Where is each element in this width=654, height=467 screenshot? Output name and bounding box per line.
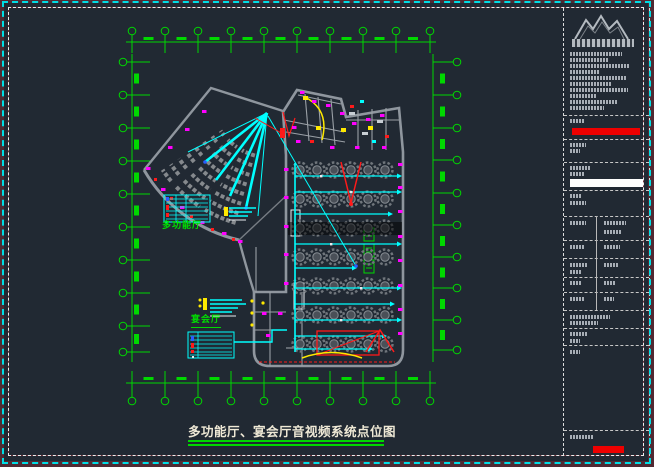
title-block (563, 8, 650, 456)
title-underline (188, 440, 384, 442)
titleblock-text-line (570, 149, 580, 153)
company-logo-mountains-icon (572, 12, 636, 42)
titleblock-text-line (570, 321, 598, 325)
titleblock-text-line (570, 58, 608, 62)
label-banquet-hall: 宴会厅 (191, 316, 221, 328)
titleblock-divider (564, 292, 649, 293)
titleblock-text-line (570, 52, 622, 56)
cad-sheet: 多功能厅 宴会厅 多功能厅、宴会厅音视频系统点位图 (0, 0, 654, 467)
label-multifunction-hall: 多功能厅 (162, 222, 202, 231)
titleblock-divider (564, 277, 649, 278)
titleblock-text-line (604, 263, 618, 267)
titleblock-divider (564, 328, 649, 329)
titleblock-text-line (570, 350, 580, 354)
titleblock-red-highlight-bar (572, 128, 640, 135)
titleblock-text-line (570, 263, 588, 267)
titleblock-text-line (570, 106, 604, 110)
auditorium-seating (163, 131, 374, 273)
titleblock-text-line (570, 245, 584, 249)
titleblock-divider (564, 430, 649, 431)
titleblock-column-divider (596, 216, 597, 310)
titleblock-text-line (570, 194, 582, 198)
titleblock-text-line (570, 435, 594, 439)
titleblock-text-line (604, 230, 622, 234)
titleblock-divider (564, 258, 649, 259)
titleblock-text-line (570, 315, 610, 319)
legend-tables (164, 195, 256, 358)
titleblock-divider (564, 115, 649, 116)
titleblock-text-line (570, 201, 586, 205)
titleblock-text-line (604, 245, 620, 249)
titleblock-text-line (570, 166, 590, 170)
titleblock-divider (564, 310, 649, 311)
titleblock-divider (564, 345, 649, 346)
titleblock-text-line (570, 172, 584, 176)
titleblock-text-line (570, 281, 582, 285)
banquet-tables (288, 163, 402, 352)
drawing-title: 多功能厅、宴会厅音视频系统点位图 (188, 425, 388, 439)
titleblock-divider (564, 240, 649, 241)
titleblock-text-line (570, 119, 584, 123)
titleblock-divider (564, 139, 649, 140)
titleblock-text-line (570, 64, 630, 68)
titleblock-text-line (570, 339, 580, 343)
titleblock-text-line (570, 82, 612, 86)
titleblock-text-line (570, 100, 618, 104)
company-name-band (572, 39, 634, 47)
titleblock-text-line (570, 76, 626, 80)
titleblock-text-line (570, 270, 582, 274)
titleblock-white-highlight-bar (570, 179, 643, 187)
titleblock-divider (564, 162, 649, 163)
titleblock-red-stamp-bar (593, 446, 624, 453)
title-underline (188, 444, 384, 446)
titleblock-text-line (604, 297, 614, 301)
titleblock-divider (564, 190, 649, 191)
titleblock-text-line (570, 221, 586, 225)
titleblock-text-line (570, 94, 596, 98)
titleblock-text-line (570, 332, 588, 336)
titleblock-text-line (570, 143, 586, 147)
floor-plan-svg (0, 0, 654, 467)
titleblock-text-line (570, 70, 600, 74)
titleblock-divider (564, 216, 649, 217)
titleblock-text-line (570, 297, 584, 301)
titleblock-text-line (604, 221, 626, 225)
titleblock-text-line (604, 281, 616, 285)
titleblock-text-line (570, 88, 628, 92)
